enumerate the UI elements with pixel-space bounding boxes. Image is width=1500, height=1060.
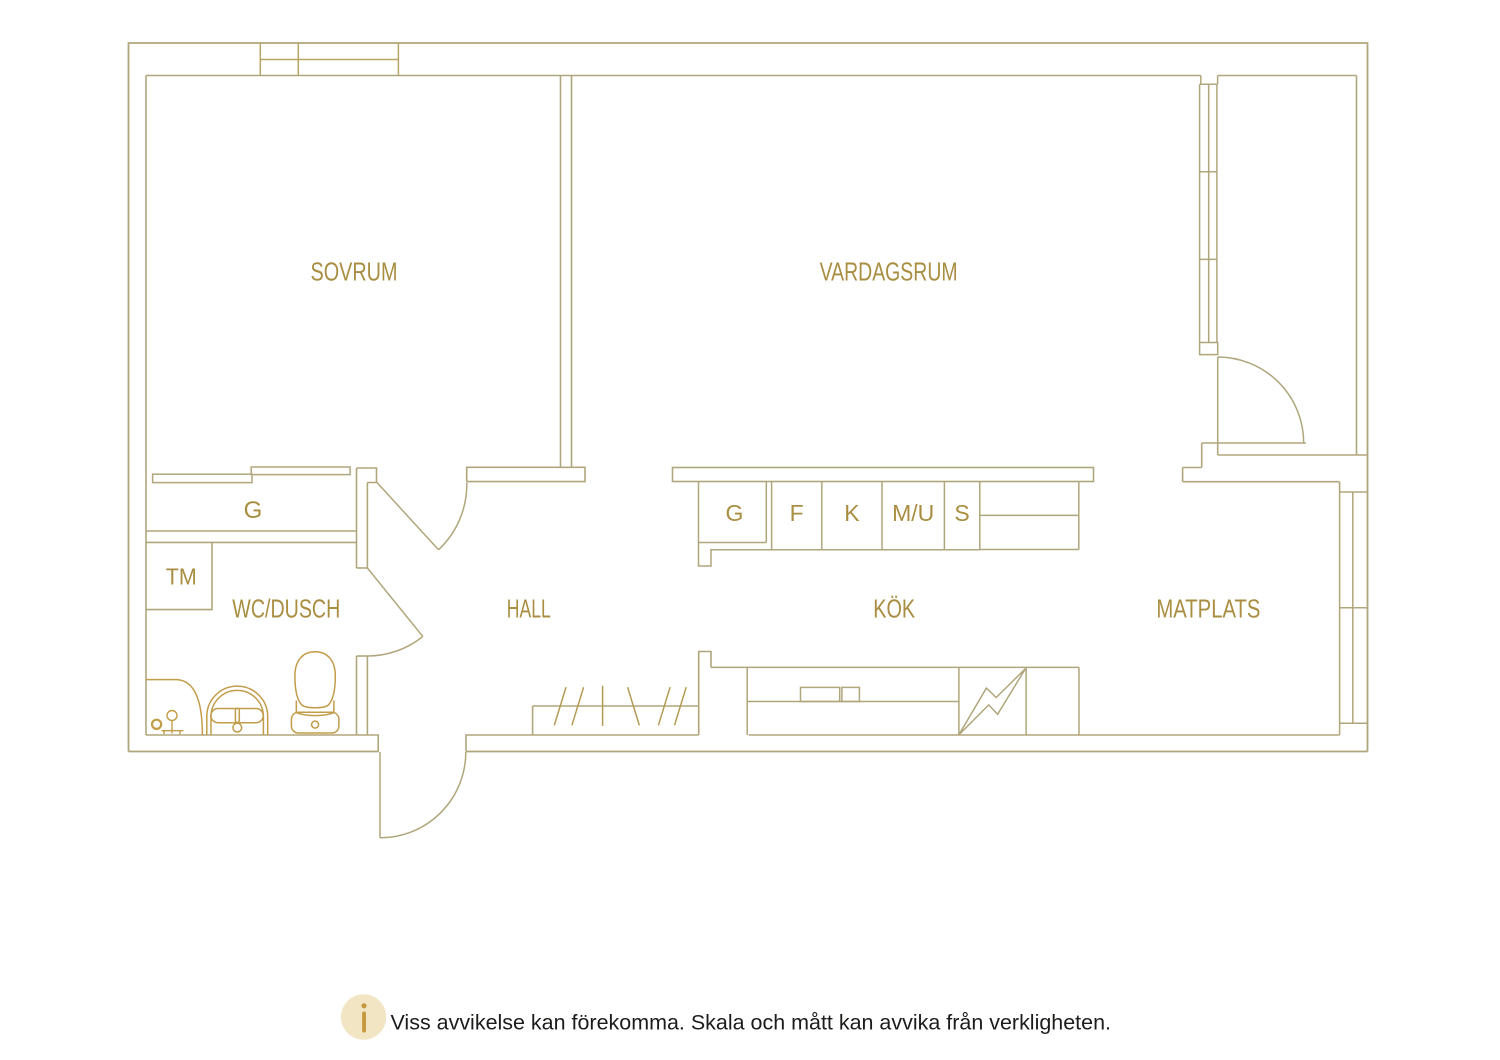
svg-text:F: F — [790, 500, 804, 526]
svg-text:M/U: M/U — [892, 500, 934, 526]
svg-text:KÖK: KÖK — [873, 594, 915, 624]
svg-text:WC/DUSCH: WC/DUSCH — [232, 594, 340, 624]
svg-text:G: G — [244, 497, 263, 524]
svg-text:VARDAGSRUM: VARDAGSRUM — [820, 257, 958, 287]
svg-text:HALL: HALL — [507, 594, 551, 624]
svg-text:Viss avvikelse kan förekomma.: Viss avvikelse kan förekomma. Skala och … — [391, 1012, 1112, 1035]
svg-text:MATPLATS: MATPLATS — [1156, 594, 1260, 624]
svg-text:TM: TM — [166, 564, 197, 590]
svg-text:S: S — [954, 500, 969, 526]
svg-text:G: G — [726, 500, 744, 526]
svg-text:SOVRUM: SOVRUM — [311, 257, 398, 287]
svg-text:K: K — [844, 500, 860, 526]
